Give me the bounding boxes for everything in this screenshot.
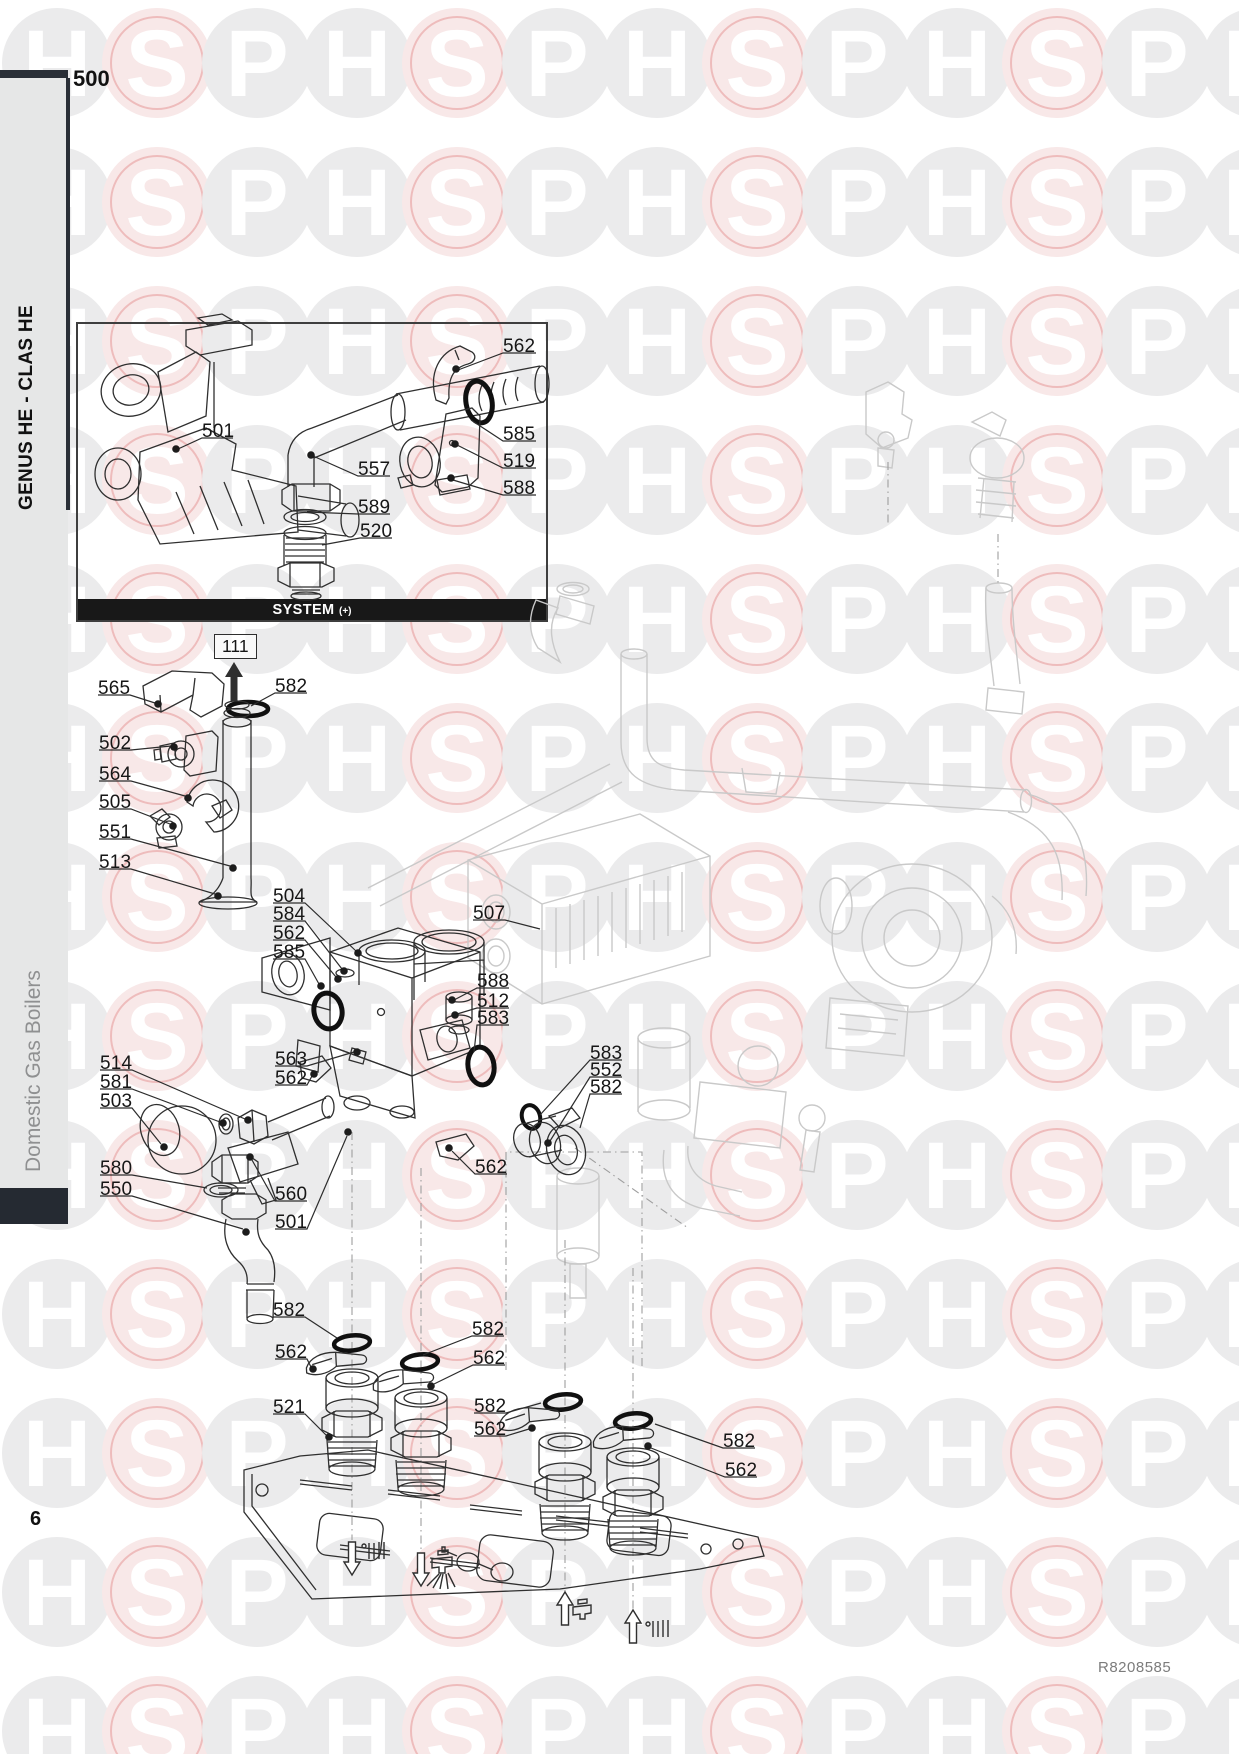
part-callout-588[interactable]: 588 <box>503 478 535 500</box>
part-callout-585[interactable]: 585 <box>273 942 305 964</box>
part-callout-562[interactable]: 562 <box>503 336 535 358</box>
part-callout-583[interactable]: 583 <box>477 1008 509 1030</box>
part-callout-564[interactable]: 564 <box>99 764 131 786</box>
part-callout-582[interactable]: 582 <box>723 1431 755 1453</box>
part-callout-589[interactable]: 589 <box>358 497 390 519</box>
part-callout-560[interactable]: 560 <box>275 1184 307 1206</box>
part-callout-505[interactable]: 505 <box>99 792 131 814</box>
part-callout-565[interactable]: 565 <box>98 678 130 700</box>
part-callout-501[interactable]: 501 <box>202 421 234 443</box>
part-callout-580[interactable]: 580 <box>100 1158 132 1180</box>
part-callout-582[interactable]: 582 <box>273 1300 305 1322</box>
part-callout-521[interactable]: 521 <box>273 1397 305 1419</box>
part-callout-588[interactable]: 588 <box>477 971 509 993</box>
part-callout-551[interactable]: 551 <box>99 822 131 844</box>
part-callout-519[interactable]: 519 <box>503 451 535 473</box>
part-callout-562[interactable]: 562 <box>725 1460 757 1482</box>
part-callout-582[interactable]: 582 <box>590 1077 622 1099</box>
part-callout-582[interactable]: 582 <box>472 1319 504 1341</box>
callout-leader-lines <box>0 0 1239 1754</box>
part-callout-582[interactable]: 582 <box>275 676 307 698</box>
part-callout-520[interactable]: 520 <box>360 521 392 543</box>
part-callout-507[interactable]: 507 <box>473 903 505 925</box>
part-callout-562[interactable]: 562 <box>275 1068 307 1090</box>
catalog-page: HSPHSPHSPHSPHHSPHSPHSPHSPHHSPHSPHSPHSPHH… <box>0 0 1239 1754</box>
part-callout-562[interactable]: 562 <box>474 1419 506 1441</box>
part-callout-513[interactable]: 513 <box>99 852 131 874</box>
part-callout-503[interactable]: 503 <box>100 1091 132 1113</box>
part-callout-562[interactable]: 562 <box>473 1348 505 1370</box>
part-callout-562[interactable]: 562 <box>475 1157 507 1179</box>
part-callout-502[interactable]: 502 <box>99 733 131 755</box>
part-callout-111-boxed: 111 <box>214 634 257 659</box>
part-callout-585[interactable]: 585 <box>503 424 535 446</box>
part-callout-582[interactable]: 582 <box>474 1396 506 1418</box>
part-callout-562[interactable]: 562 <box>275 1342 307 1364</box>
part-callout-501[interactable]: 501 <box>275 1212 307 1234</box>
part-callout-557[interactable]: 557 <box>358 459 390 481</box>
part-callout-550[interactable]: 550 <box>100 1179 132 1201</box>
